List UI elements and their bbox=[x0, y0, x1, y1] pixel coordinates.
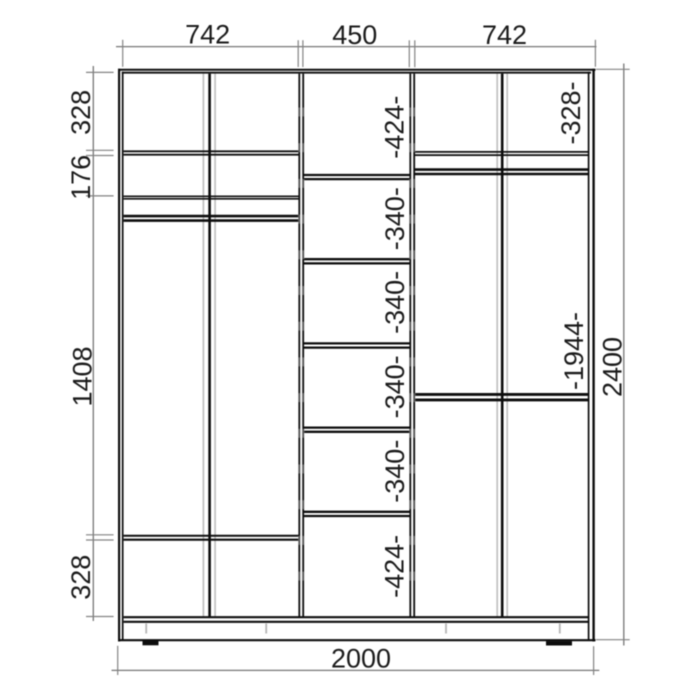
svg-text:-424-: -424- bbox=[379, 535, 409, 598]
svg-text:-328-: -328- bbox=[556, 81, 586, 144]
svg-text:328: 328 bbox=[66, 555, 96, 600]
svg-text:-340-: -340- bbox=[380, 187, 410, 250]
svg-text:328: 328 bbox=[66, 90, 96, 135]
svg-text:742: 742 bbox=[185, 20, 230, 50]
svg-text:176: 176 bbox=[66, 155, 96, 200]
svg-text:-1944-: -1944- bbox=[559, 312, 589, 390]
svg-text:-340-: -340- bbox=[380, 440, 410, 503]
svg-text:-340-: -340- bbox=[380, 355, 410, 418]
svg-text:450: 450 bbox=[332, 20, 377, 50]
svg-text:-340-: -340- bbox=[380, 271, 410, 334]
svg-text:1408: 1408 bbox=[68, 346, 98, 406]
svg-text:-424-: -424- bbox=[379, 96, 409, 159]
svg-text:2400: 2400 bbox=[598, 337, 628, 397]
svg-text:742: 742 bbox=[482, 20, 527, 50]
svg-text:2000: 2000 bbox=[331, 643, 391, 673]
